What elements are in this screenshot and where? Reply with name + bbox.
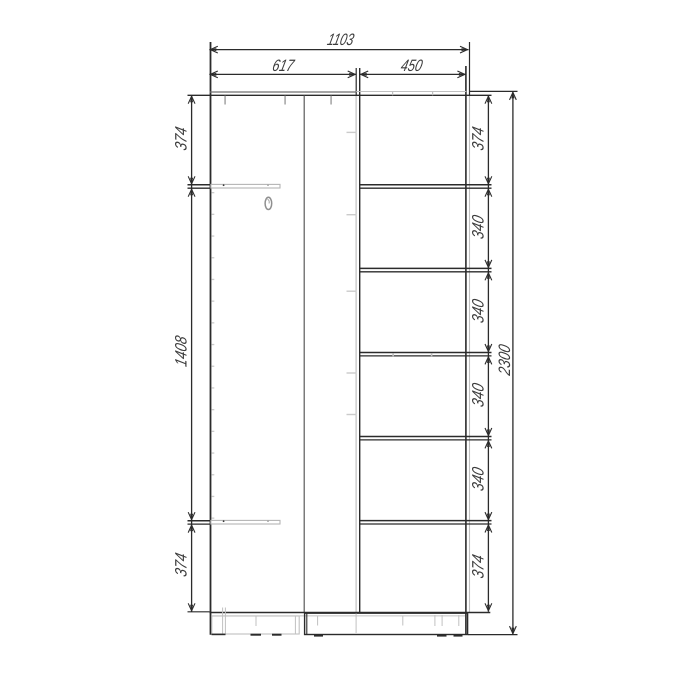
svg-text:374: 374 — [469, 553, 487, 580]
svg-text:1103: 1103 — [326, 31, 357, 49]
svg-text:374: 374 — [172, 551, 190, 578]
svg-text:374: 374 — [469, 125, 487, 152]
svg-text:374: 374 — [172, 125, 190, 152]
svg-text:1408: 1408 — [172, 334, 190, 369]
svg-text:2300: 2300 — [496, 342, 514, 378]
